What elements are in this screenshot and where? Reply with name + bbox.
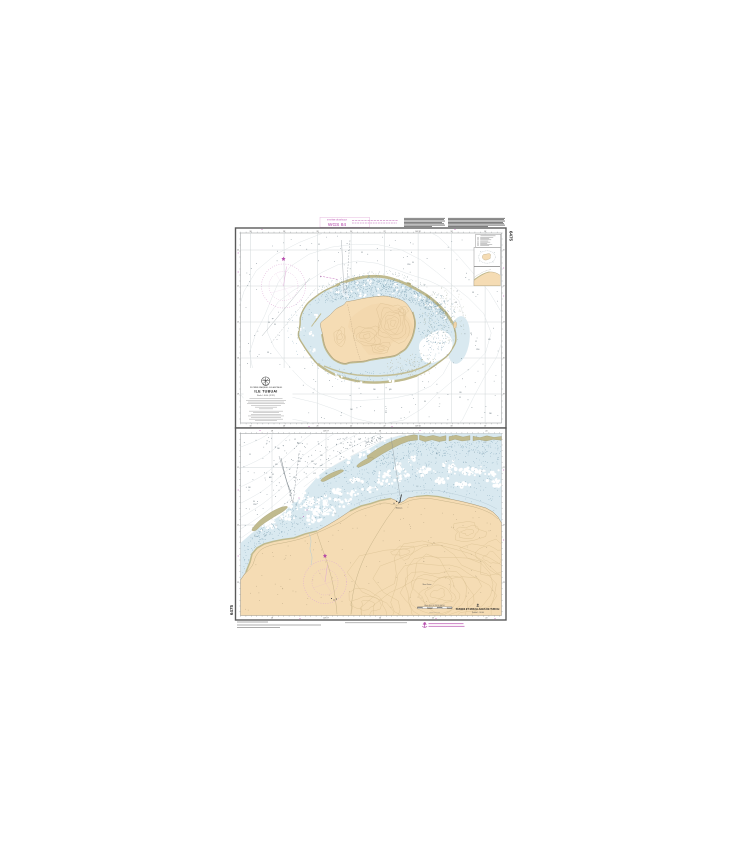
svg-text:260: 260 <box>373 389 376 391</box>
svg-text:6475: 6475 <box>509 231 514 242</box>
svg-text:7: 7 <box>249 509 250 511</box>
svg-text:12: 12 <box>314 473 316 475</box>
svg-text:420: 420 <box>269 477 272 479</box>
svg-text:1,8: 1,8 <box>254 536 256 538</box>
svg-text:34: 34 <box>268 322 270 324</box>
svg-text:12: 12 <box>470 333 472 335</box>
svg-text:34: 34 <box>349 445 351 447</box>
svg-text:5: 5 <box>296 505 297 507</box>
svg-text:98: 98 <box>455 302 457 304</box>
svg-text:3: 3 <box>353 467 354 469</box>
svg-text:PASSES ET MOUILLAGES DE TUBUAI: PASSES ET MOUILLAGES DE TUBUAI <box>456 608 500 611</box>
svg-text:420: 420 <box>275 464 278 466</box>
svg-text:1,8: 1,8 <box>434 448 436 450</box>
svg-text:1150: 1150 <box>407 264 411 266</box>
svg-text:2: 2 <box>262 530 263 532</box>
svg-text:12: 12 <box>294 439 296 441</box>
svg-text:730: 730 <box>289 495 292 497</box>
svg-text:12: 12 <box>475 341 477 343</box>
svg-text:34: 34 <box>424 401 426 403</box>
svg-text:730: 730 <box>366 442 369 444</box>
svg-text:4: 4 <box>297 524 298 526</box>
svg-text:1,8: 1,8 <box>299 518 301 520</box>
svg-text:2,4: 2,4 <box>484 442 486 444</box>
svg-text:55: 55 <box>249 454 251 456</box>
svg-text:5: 5 <box>383 459 384 461</box>
svg-text:12: 12 <box>298 443 300 445</box>
svg-text:145: 145 <box>320 455 323 457</box>
svg-text:34: 34 <box>412 262 414 264</box>
svg-text:98: 98 <box>267 352 269 354</box>
svg-text:260: 260 <box>489 413 492 415</box>
svg-text:2: 2 <box>314 497 315 499</box>
svg-text:Mont Taitaa: Mont Taitaa <box>423 583 432 586</box>
svg-text:5: 5 <box>465 462 466 464</box>
svg-text:260: 260 <box>248 487 251 489</box>
svg-text:4: 4 <box>481 471 482 473</box>
svg-text:1,8: 1,8 <box>264 535 266 537</box>
svg-text:149°20': 149°20' <box>415 231 421 233</box>
svg-text:6475: 6475 <box>229 604 234 615</box>
svg-text:260: 260 <box>350 409 353 411</box>
svg-text:420: 420 <box>298 461 301 463</box>
svg-text:ILE TUBUAI: ILE TUBUAI <box>254 390 277 394</box>
svg-text:4: 4 <box>479 453 480 455</box>
svg-text:12: 12 <box>340 443 342 445</box>
svg-text:7: 7 <box>286 453 287 455</box>
svg-text:260: 260 <box>358 439 361 441</box>
svg-text:1150: 1150 <box>476 349 480 351</box>
svg-text:420: 420 <box>488 339 491 341</box>
svg-text:55: 55 <box>272 474 274 476</box>
svg-text:98: 98 <box>472 292 474 294</box>
svg-text:2: 2 <box>282 522 283 524</box>
svg-text:260: 260 <box>277 448 280 450</box>
svg-text:Mataura: Mataura <box>396 507 403 510</box>
svg-text:149°27': 149°27' <box>323 617 329 619</box>
svg-text:34: 34 <box>274 324 276 326</box>
svg-text:4: 4 <box>446 461 447 463</box>
svg-text:1150: 1150 <box>253 504 257 506</box>
svg-text:145: 145 <box>459 392 462 394</box>
svg-text:34: 34 <box>385 412 387 414</box>
svg-text:2,4: 2,4 <box>436 453 438 455</box>
svg-text:Milles 0,1 0 0,1 0,2: Milles 0,1 0 0,1 0,2 <box>429 611 440 613</box>
svg-text:5: 5 <box>319 517 320 519</box>
svg-text:98: 98 <box>371 441 373 443</box>
svg-text:1,8: 1,8 <box>325 473 327 475</box>
svg-text:145: 145 <box>389 389 392 391</box>
svg-text:1,8: 1,8 <box>275 525 277 527</box>
svg-text:34: 34 <box>253 501 255 503</box>
svg-text:55: 55 <box>318 244 320 246</box>
svg-text:55: 55 <box>361 252 363 254</box>
svg-text:5: 5 <box>281 519 282 521</box>
svg-text:7: 7 <box>409 412 410 414</box>
svg-text:145: 145 <box>293 477 296 479</box>
svg-text:420: 420 <box>311 461 314 463</box>
svg-text:2,4: 2,4 <box>334 513 336 515</box>
svg-text:3: 3 <box>474 452 475 454</box>
svg-text:SYSTÈME GÉODÉSIQUE: SYSTÈME GÉODÉSIQUE <box>327 219 348 222</box>
svg-text:4: 4 <box>483 453 484 455</box>
svg-text:55: 55 <box>459 397 461 399</box>
svg-text:149°27': 149°27' <box>323 431 329 433</box>
svg-text:0,9: 0,9 <box>397 464 399 466</box>
svg-text:1,8: 1,8 <box>416 486 418 488</box>
